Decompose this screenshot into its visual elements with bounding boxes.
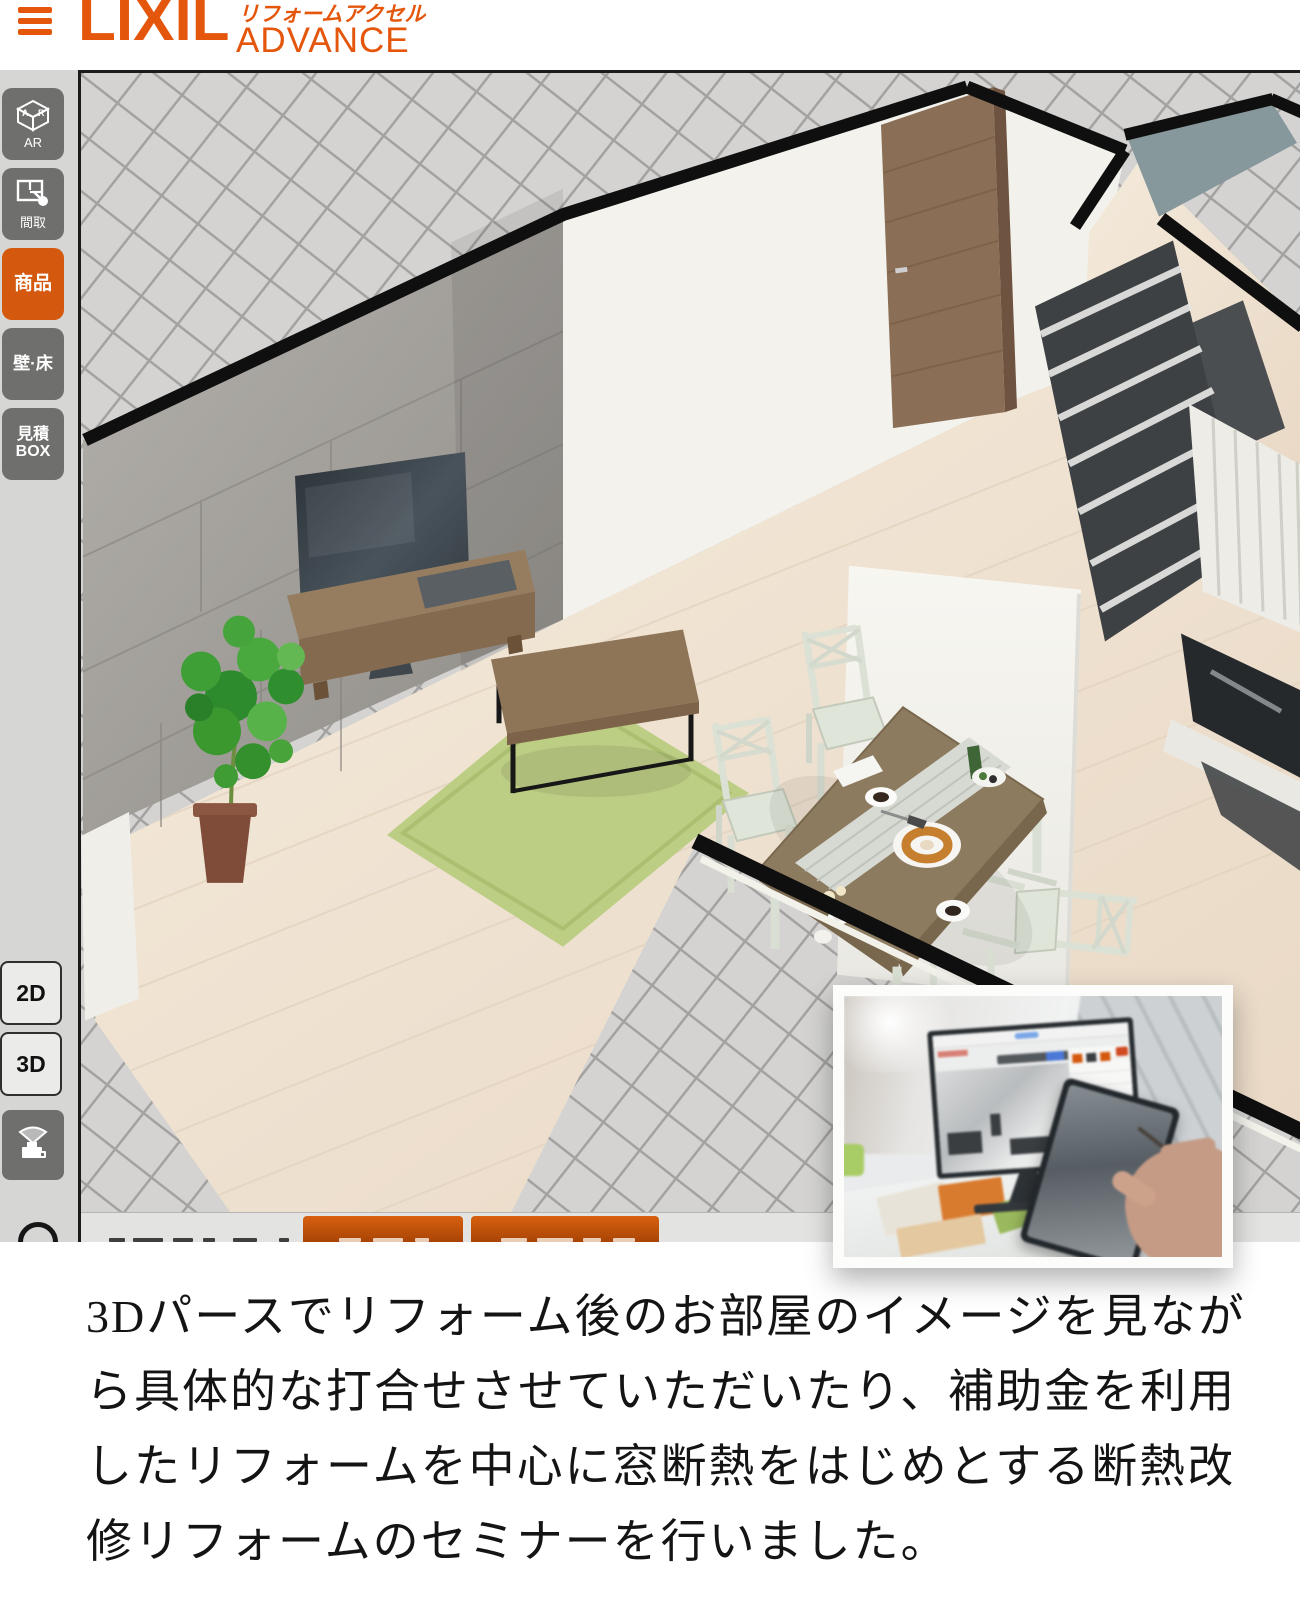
- sidebar-item-shouhin[interactable]: 商品: [2, 248, 64, 320]
- brand-logo: LIXIL: [78, 0, 230, 55]
- canvas-orange-button-1[interactable]: [303, 1216, 463, 1242]
- floorplan-cursor-icon: [14, 178, 52, 210]
- walkthrough-camera-icon: [13, 1126, 53, 1164]
- seminar-photo-image: [844, 996, 1222, 1257]
- sidebar-item-label: 見積 BOX: [16, 427, 51, 461]
- sidebar-item-label: AR: [24, 135, 42, 150]
- canvas-orange-button-2[interactable]: [471, 1216, 659, 1242]
- app-header: LIXIL リフォームアクセル ADVANCE: [0, 0, 1300, 70]
- sidebar-item-kabe-yuka[interactable]: 壁·床: [2, 328, 64, 400]
- sidebar-item-label: 商品: [14, 274, 52, 294]
- walkthrough-camera-button[interactable]: [2, 1110, 64, 1180]
- sidebar-item-mitsumori-box[interactable]: 見積 BOX: [2, 408, 64, 480]
- sidebar-item-ar[interactable]: A R AR: [2, 88, 64, 160]
- page: LIXIL リフォームアクセル ADVANCE A R AR 間取: [0, 0, 1300, 1600]
- wood-door[interactable]: [881, 87, 1017, 428]
- view-3d-button[interactable]: 3D: [0, 1032, 62, 1096]
- sidebar-item-label: 間取: [20, 212, 46, 231]
- brand-sub-advance: ADVANCE: [236, 21, 410, 61]
- svg-text:R: R: [38, 108, 45, 118]
- ar-cube-icon: A R: [14, 99, 52, 133]
- sidebar-item-label: 壁·床: [13, 355, 53, 373]
- seminar-photo: [833, 985, 1233, 1268]
- hamburger-menu-icon[interactable]: [18, 7, 54, 41]
- view-2d-button[interactable]: 2D: [0, 961, 62, 1025]
- left-toolbar: A R AR 間取 商品 壁·床 見積 BOX 2D: [0, 70, 78, 1242]
- svg-text:A: A: [22, 108, 29, 118]
- help-circle-icon[interactable]: [18, 1222, 58, 1242]
- coffee-table[interactable]: [491, 630, 699, 798]
- sidebar-item-madori[interactable]: 間取: [2, 168, 64, 240]
- view-2d-label: 2D: [16, 980, 45, 1007]
- view-3d-label: 3D: [16, 1051, 45, 1078]
- seminar-description: 3Dパースでリフォーム後のお部屋のイメージを見なが ら具体的な打合せさせていただ…: [86, 1280, 1250, 1580]
- wall-end-cap: [81, 812, 139, 1020]
